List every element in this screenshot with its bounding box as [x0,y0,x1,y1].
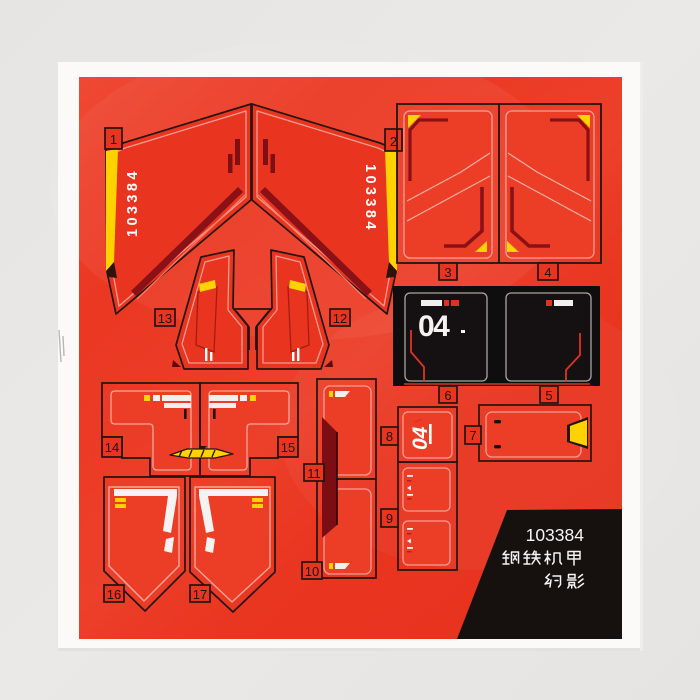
svg-text:14: 14 [105,440,119,455]
svg-text:13: 13 [158,311,172,326]
svg-text:16: 16 [107,587,121,602]
svg-text:04: 04 [409,426,432,450]
svg-text:4: 4 [544,265,551,280]
svg-text:103384: 103384 [362,164,378,233]
svg-text:6: 6 [444,388,451,403]
svg-text:17: 17 [193,587,207,602]
svg-text:9: 9 [386,511,393,526]
svg-text:7: 7 [469,428,476,443]
svg-text:8: 8 [386,429,393,444]
svg-text:103384: 103384 [125,168,141,237]
svg-text:3: 3 [444,265,451,280]
svg-text:11: 11 [307,466,321,481]
svg-text:04: 04 [418,310,450,343]
svg-text:10: 10 [305,564,319,579]
svg-text:103384: 103384 [526,525,585,545]
svg-text:5: 5 [545,388,552,403]
svg-text:1: 1 [110,132,117,147]
svg-text:12: 12 [333,311,347,326]
svg-text:15: 15 [281,440,295,455]
svg-text:2: 2 [390,134,397,149]
